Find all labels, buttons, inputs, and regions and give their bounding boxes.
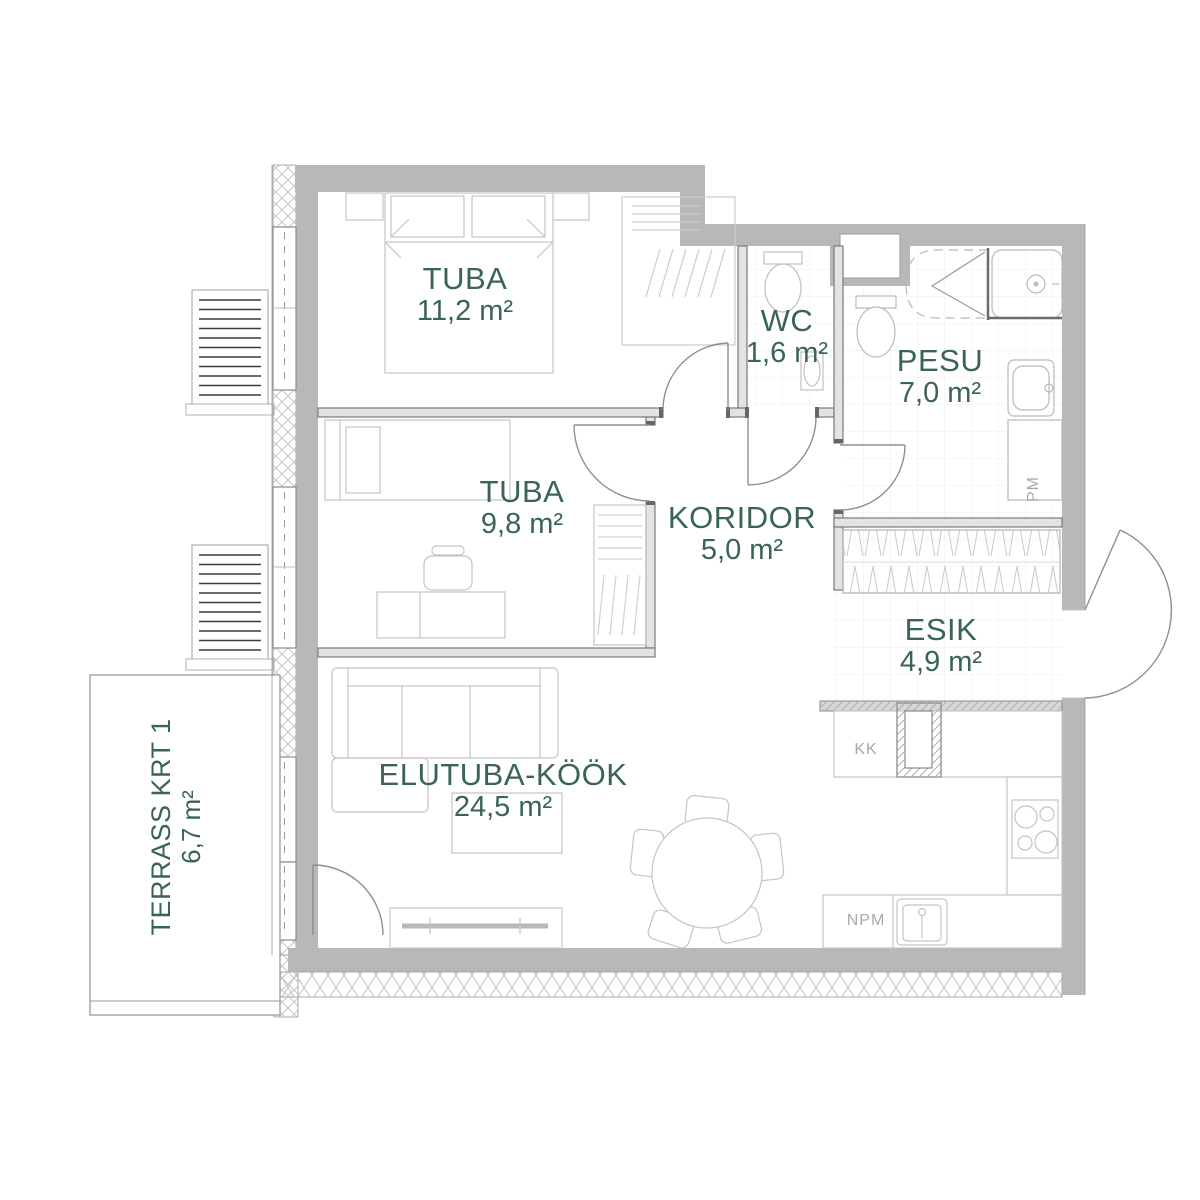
- window-2: [273, 487, 296, 648]
- room-label-terrass: TERRASS KRT 1 6,7 m²: [147, 718, 205, 935]
- wardrobe-bedroom2: [594, 505, 646, 645]
- desk-chair: [424, 546, 472, 590]
- door-bedroom2: [574, 425, 650, 501]
- room-name: TERRASS KRT 1: [147, 718, 177, 935]
- kitchen-sink: [897, 899, 947, 945]
- grille-2: [186, 545, 274, 670]
- nightstand-left: [346, 193, 383, 220]
- room-area: 7,0 m²: [897, 378, 983, 410]
- room-name: TUBA: [417, 262, 513, 296]
- room-area: 9,8 m²: [480, 509, 565, 541]
- room-area: 5,0 m²: [668, 535, 816, 567]
- insulation-strip: [276, 972, 1062, 997]
- door-bedroom1: [663, 343, 728, 410]
- nightstand-right: [552, 193, 589, 220]
- washing-machine-label: PM: [1025, 476, 1043, 502]
- room-name: WC: [746, 304, 828, 338]
- desk: [377, 592, 505, 638]
- door-jamb-ticks: [646, 407, 843, 514]
- room-area: 6,7 m²: [177, 718, 206, 935]
- tv-bench: [390, 908, 562, 948]
- window-1: [273, 227, 296, 390]
- room-label-tuba1: TUBA 11,2 m²: [417, 262, 513, 328]
- dishwasher-label: NPM: [847, 912, 886, 930]
- floor-plan-drawing: [0, 0, 1200, 1200]
- floor-plan: TUBA 11,2 m² WC 1,6 m² PESU 7,0 m² TUBA …: [0, 0, 1200, 1200]
- pillow-right: [472, 196, 545, 237]
- hob: [1012, 800, 1058, 858]
- dining-set: [630, 795, 785, 950]
- window-grilles: [186, 290, 274, 670]
- room-label-esik: ESIK 4,9 m²: [900, 613, 982, 679]
- ventilation-shaft: [840, 234, 900, 278]
- washbasin-pesu: [1008, 360, 1054, 416]
- closet-bedroom1: [622, 197, 735, 345]
- room-label-wc: WC 1,6 m²: [746, 304, 828, 370]
- bedroom1-furniture: [346, 193, 735, 373]
- room-label-elutuba: ELUTUBA-KÖÖK 24,5 m²: [379, 758, 628, 824]
- room-name: TUBA: [480, 475, 565, 509]
- room-label-tuba2: TUBA 9,8 m²: [480, 475, 565, 541]
- toilet-pesu: [856, 296, 896, 357]
- esik-wardrobe: [843, 530, 1060, 593]
- dining-table: [652, 818, 762, 928]
- room-label-pesu: PESU 7,0 m²: [897, 344, 983, 410]
- room-name: KORIDOR: [668, 501, 816, 535]
- room-name: ELUTUBA-KÖÖK: [379, 758, 628, 792]
- door-terrace: [313, 865, 383, 935]
- grille-1: [186, 290, 274, 415]
- room-area: 4,9 m²: [900, 647, 982, 679]
- room-label-koridor: KORIDOR 5,0 m²: [668, 501, 816, 567]
- pillow-left: [391, 196, 464, 237]
- room-name: PESU: [897, 344, 983, 378]
- door-wc: [748, 417, 816, 485]
- room-area: 11,2 m²: [417, 296, 513, 328]
- room-area: 1,6 m²: [746, 338, 828, 370]
- pillow: [346, 427, 380, 493]
- duct-column: [897, 703, 941, 777]
- fridge-label: KK: [854, 741, 877, 759]
- room-area: 24,5 m²: [379, 792, 628, 824]
- room-name: ESIK: [900, 613, 982, 647]
